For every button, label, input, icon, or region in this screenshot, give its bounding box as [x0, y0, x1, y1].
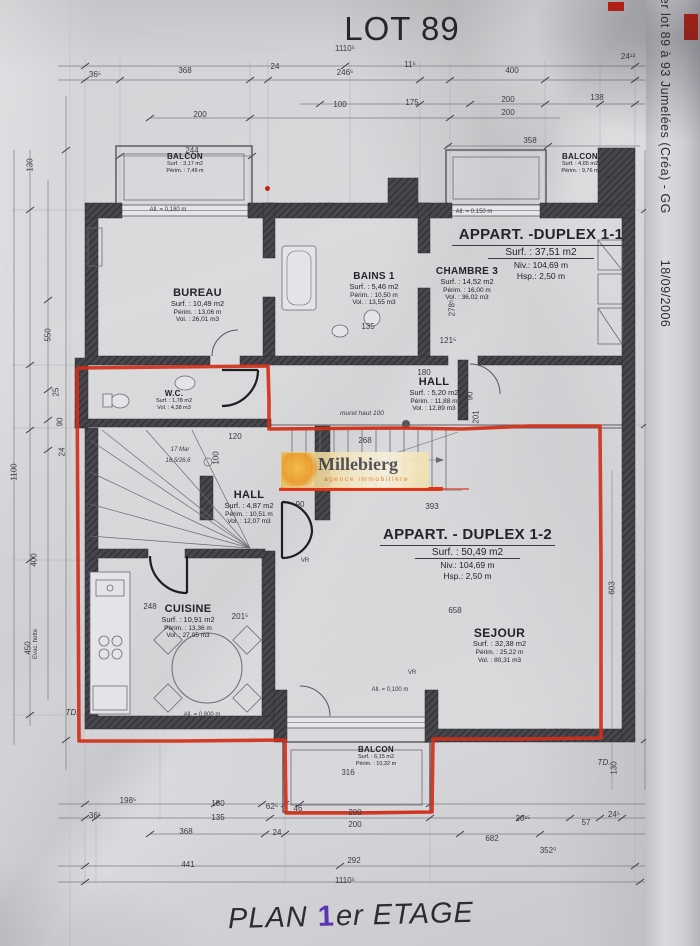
dim-label: 368 — [178, 66, 191, 75]
dim-label: 200 — [348, 820, 361, 829]
dim-label: 90 — [56, 418, 65, 427]
agency-watermark: Millebierg agence immobilière — [281, 452, 429, 488]
annotation-allege: All. = 0,150 m — [456, 209, 493, 215]
plan-footer: PLAN 1er ETAGE — [228, 897, 475, 936]
dim-label: 24 — [58, 448, 67, 457]
dim-label: 400 — [505, 66, 518, 75]
dim-label: 36⁵ — [89, 811, 101, 820]
dim-label: 658 — [448, 606, 461, 615]
side-note: mer lot 89 à 93 Jumelées (Créa) - GG18/0… — [658, 0, 672, 327]
dim-label: 57 — [582, 818, 591, 827]
page-title: LOT 89 — [344, 10, 459, 48]
annotation-vr: VR — [301, 558, 309, 564]
dim-label: 200 — [348, 808, 361, 817]
annotation-stair-ratio: 16,5/26,6 — [165, 458, 190, 464]
room-wc: W.C. Surf. : 1,78 m2 Vol. : 4,38 m3 — [148, 389, 200, 411]
agency-logo-icon — [282, 453, 318, 486]
dim-label: 393 — [425, 502, 438, 511]
annotation-td: TD. — [604, 175, 617, 184]
dim-label: 278⁵ — [448, 300, 457, 317]
dim-label: 368 — [179, 827, 192, 836]
dim-label: 200 — [193, 110, 206, 119]
dim-label: 358 — [523, 136, 536, 145]
dim-label: 24¹² — [621, 52, 635, 61]
annotation-allege: All. = 0,100 m — [372, 687, 409, 693]
dim-label: 36⁵ — [89, 70, 101, 79]
dim-label: 1110⁵ — [335, 876, 355, 885]
dim-label: 316 — [341, 768, 354, 777]
dim-label: 400 — [30, 553, 39, 566]
annotation-vr: VR — [408, 670, 416, 676]
room-chambre-3: CHAMBRE 3 Surf. : 14,52 m2 Périm. : 16,0… — [424, 266, 510, 302]
dim-label: 62⁵ — [266, 802, 278, 811]
annotation-allege: All. = 0,800 m — [304, 203, 341, 209]
annotation-allege: All. = 0,180 m — [150, 207, 187, 213]
room-bains-1: BAINS 1 Surf. : 5,46 m2 Périm. : 10,50 m… — [336, 271, 412, 307]
dim-label: 201 — [472, 410, 481, 423]
annotation-muret: muret haut 100 — [340, 410, 384, 417]
dim-label: 46 — [294, 804, 303, 813]
annotation-allege: All. = 0,800 m — [184, 712, 221, 718]
dim-label: 25 — [52, 388, 61, 397]
annotation-td: TD. — [598, 758, 611, 767]
dim-label: 450 — [24, 641, 33, 654]
dim-label: 200 — [501, 108, 514, 117]
red-pen-mark — [684, 14, 698, 40]
room-balcon-top-right: BALCON Surf. : 4,65 m2 Périm. : 9,76 m — [540, 152, 620, 174]
dim-label: 682 — [485, 834, 498, 843]
side-note-text: mer lot 89 à 93 Jumelées (Créa) - GG — [658, 0, 672, 214]
dim-label: 268 — [358, 436, 371, 445]
annotation-allege: All. = 0,900 m — [540, 729, 577, 735]
dim-label: 24 — [271, 62, 280, 71]
room-balcon-bottom: BALCON Surf. : 6,15 m2 Périm. : 10,32 m — [340, 745, 412, 767]
footer-pre: PLAN — [228, 901, 309, 935]
room-hall-upper: HALL Surf. : 5,20 m2 Périm. : 11,88 m Vo… — [398, 376, 470, 413]
room-cuisine: CUISINE Surf. : 10,91 m2 Périm. : 13,36 … — [148, 603, 228, 640]
side-note-date: 18/09/2006 — [658, 260, 672, 328]
room-balcon-top-left: BALCON Surf. : 3,17 m2 Périm. : 7,49 m — [130, 152, 240, 174]
page-edge — [646, 0, 700, 946]
dim-label: 441 — [181, 860, 194, 869]
dim-label: 90 — [296, 500, 305, 509]
dim-label: 135 — [361, 322, 374, 331]
red-pen-mark — [608, 2, 624, 11]
dim-label: 135 — [211, 813, 224, 822]
dim-label: 138 — [590, 93, 603, 102]
dim-label: 121⁵ — [440, 336, 457, 345]
dim-label: 246⁵ — [337, 68, 354, 77]
dim-label: 24 — [273, 828, 282, 837]
dim-label: 550 — [44, 328, 53, 341]
room-sejour: SEJOUR Surf. : 32,38 m2 Périm. : 25,22 m… — [452, 626, 547, 664]
dim-label: 1100 — [10, 463, 19, 480]
room-appart-duplex-1-2: APPART. - DUPLEX 1-2 Surf. : 50,49 m2 Ni… — [380, 526, 555, 581]
dim-label: 100 — [212, 451, 221, 464]
footer-post: er ETAGE — [336, 897, 475, 933]
dim-label: 200 — [501, 95, 514, 104]
dim-label: 180 — [417, 368, 430, 377]
dim-label: 130 — [26, 158, 35, 171]
dim-label: 90 — [466, 392, 475, 401]
room-hall-lower: HALL Surf. : 4,87 m2 Périm. : 10,51 m Vo… — [214, 489, 284, 526]
annotation-evac-hotte: Evac. hotte — [33, 629, 39, 659]
dim-label: 11⁵ — [404, 60, 416, 69]
dim-label: 198⁵ — [120, 796, 137, 805]
room-bureau: BUREAU Surf. : 10,49 m2 Périm. : 13,06 m… — [155, 287, 240, 324]
dim-label: 24⁵ — [608, 810, 620, 819]
dim-label: 120 — [228, 432, 241, 441]
dim-label: 248 — [143, 602, 156, 611]
agency-name: Millebierg — [318, 454, 398, 475]
dim-label: 603 — [608, 581, 617, 594]
watermark-underline — [279, 488, 442, 492]
red-pen-dot — [265, 186, 270, 191]
dim-label: 244 — [185, 146, 198, 155]
dim-label: 20¹⁵ — [516, 814, 531, 823]
footer-floor-number-pen: 1 — [317, 900, 335, 932]
annotation-stair-count: 17 Mar — [171, 447, 190, 453]
annotation-td: TD. — [66, 708, 79, 717]
floorplan-photo: LOT 89 PLAN 1er ETAGE mer lot 89 à 93 Ju… — [0, 0, 700, 946]
dim-label: 352⁰ — [540, 846, 557, 855]
dim-label: 175 — [405, 98, 418, 107]
dim-label: 201⁵ — [232, 612, 249, 621]
dim-label: 100 — [333, 100, 346, 109]
dim-label: 180 — [211, 799, 224, 808]
dim-label: 292 — [347, 856, 360, 865]
agency-tagline: agence immobilière — [324, 476, 409, 483]
dim-label: 1110⁵ — [335, 44, 355, 53]
dim-label: 130 — [610, 761, 619, 774]
